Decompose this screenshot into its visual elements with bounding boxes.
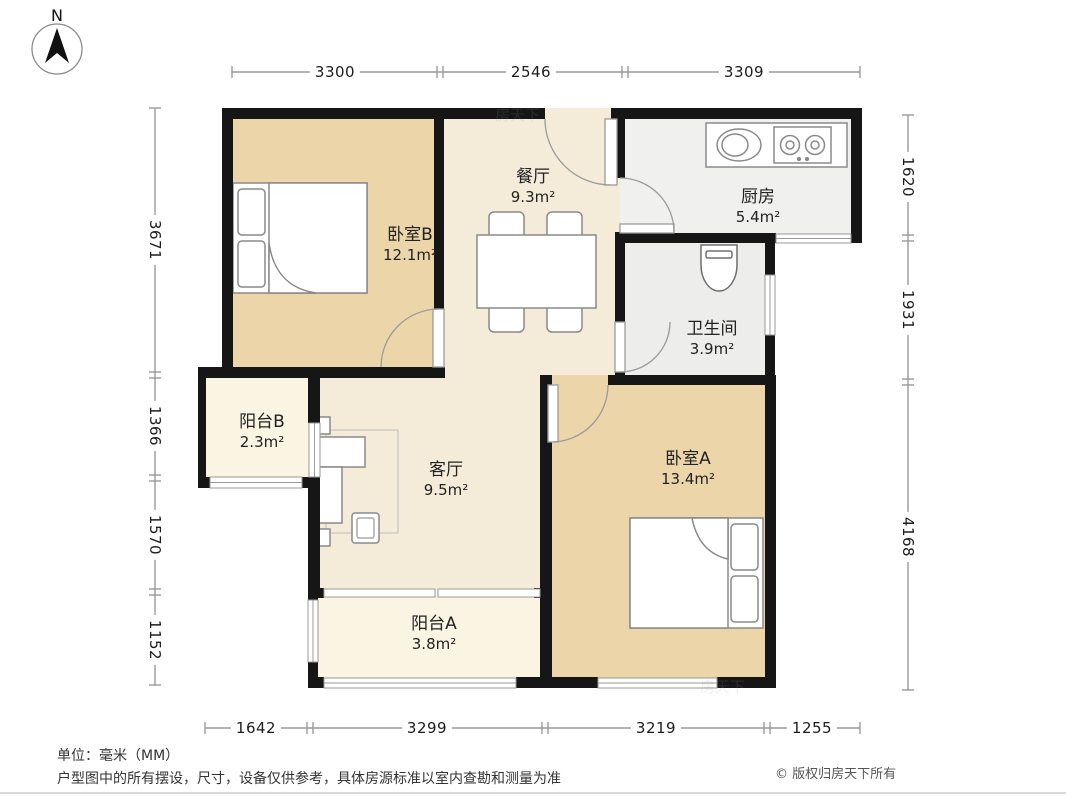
room-area: 9.3m² (511, 188, 555, 208)
room-name: 客厅 (424, 459, 468, 481)
room-label-bathroom: 卫生间 3.9m² (687, 318, 738, 360)
dim-right-3: 4168 (899, 512, 917, 562)
room-name: 卧室B (383, 224, 437, 246)
room-label-bedroom-b: 卧室B 12.1m² (383, 224, 437, 266)
dim-right-1: 1620 (899, 152, 917, 202)
dim-left-3: 1570 (146, 510, 164, 560)
room-label-kitchen: 厨房 5.4m² (736, 186, 780, 228)
balcony-a-bottom-window (324, 678, 516, 688)
toilet-icon (701, 245, 737, 291)
balcony-a-side-window (308, 600, 318, 662)
dim-bottom-4: 1255 (787, 719, 837, 737)
room-area: 9.5m² (424, 481, 468, 501)
room-name: 卧室A (661, 448, 715, 470)
dim-right-2: 1931 (899, 285, 917, 335)
room-area: 12.1m² (383, 246, 437, 266)
watermark-text: 房天下 (700, 676, 745, 697)
dim-left-4: 1152 (146, 615, 164, 665)
living-balcony-a-slider (324, 589, 540, 597)
dim-bottom-2: 3299 (402, 719, 452, 737)
disclaimer: 户型图中的所有摆设，尺寸，设备仅供参考，具体房源标准以室内查勘和测量为准 (57, 768, 561, 788)
room-name: 厨房 (736, 186, 780, 208)
room-area: 3.8m² (411, 635, 457, 655)
room-area: 2.3m² (239, 433, 285, 453)
balcony-b-window (210, 477, 302, 488)
dim-top-3: 3309 (719, 63, 769, 81)
kitchen-counter (706, 123, 847, 167)
room-name: 阳台B (239, 411, 285, 433)
watermark-text: 房天下 (495, 104, 540, 125)
kitchen-window (776, 234, 851, 243)
bathroom-window (765, 275, 775, 335)
dim-bottom-1: 1642 (231, 719, 281, 737)
unit-note: 单位：毫米（MM） (57, 745, 179, 765)
compass-north-label: N (51, 6, 63, 25)
dim-left-1: 3671 (146, 215, 164, 265)
room-label-living: 客厅 9.5m² (424, 459, 468, 501)
room-label-dining: 餐厅 9.3m² (511, 166, 555, 208)
room-label-bedroom-a: 卧室A 13.4m² (661, 448, 715, 490)
dim-left-2: 1366 (146, 401, 164, 451)
dim-bottom-3: 3219 (631, 719, 681, 737)
dim-top-2: 2546 (506, 63, 556, 81)
bed-bedroom-b (233, 183, 367, 293)
balcony-b-door-frame (309, 423, 320, 477)
room-label-balcony-b: 阳台B 2.3m² (239, 411, 285, 453)
room-area: 5.4m² (736, 208, 780, 228)
room-name: 卫生间 (687, 318, 738, 340)
room-area: 3.9m² (687, 340, 738, 360)
copyright: © 版权归房天下所有 (775, 763, 896, 782)
room-name: 餐厅 (511, 166, 555, 188)
room-label-balcony-a: 阳台A 3.8m² (411, 613, 457, 655)
room-name: 阳台A (411, 613, 457, 635)
compass-icon (32, 24, 82, 74)
bathroom-floor (615, 233, 775, 385)
dim-top-1: 3300 (310, 63, 360, 81)
floorplan-page: N 3300 2546 3309 3671 1366 1570 1152 162… (0, 0, 1066, 800)
room-area: 13.4m² (661, 470, 715, 490)
footer-divider (0, 792, 1066, 794)
bed-bedroom-a (630, 518, 763, 628)
